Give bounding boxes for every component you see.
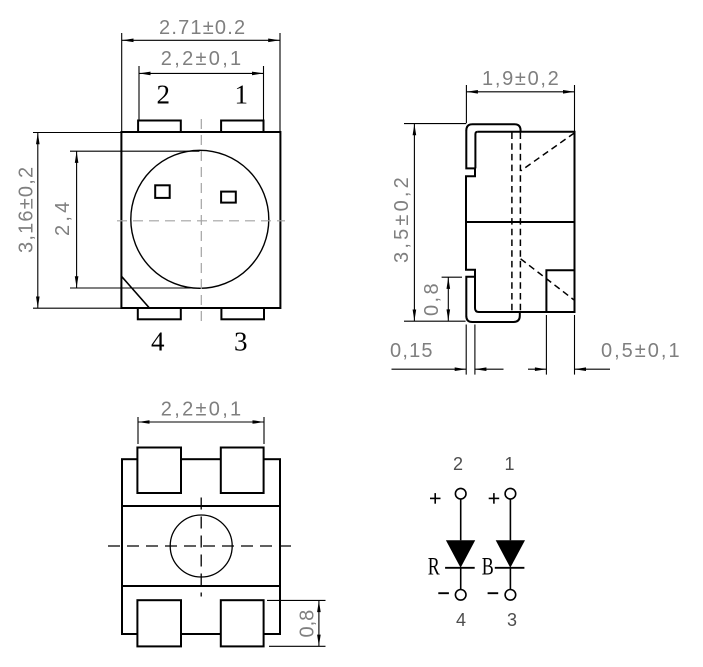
svg-text:0,5±0,1: 0,5±0,1	[601, 340, 682, 362]
svg-text:3,5±0,2: 3,5±0,2	[391, 174, 413, 263]
svg-text:3: 3	[234, 327, 248, 357]
svg-text:2,2±0,1: 2,2±0,1	[161, 48, 244, 70]
svg-text:0,8: 0,8	[421, 281, 443, 316]
svg-text:0,15: 0,15	[390, 340, 434, 362]
svg-text:1,9±0,2: 1,9±0,2	[482, 68, 560, 90]
svg-text:3: 3	[507, 610, 518, 630]
svg-text:2,4: 2,4	[52, 199, 74, 236]
svg-text:R: R	[428, 554, 440, 581]
svg-text:2: 2	[453, 454, 464, 474]
svg-text:1: 1	[505, 454, 516, 474]
svg-text:1: 1	[235, 80, 249, 110]
svg-text:2.71±0.2: 2.71±0.2	[159, 17, 246, 39]
svg-text:3,16±0,2: 3,16±0,2	[16, 166, 38, 253]
svg-text:2,2±0,1: 2,2±0,1	[161, 399, 244, 421]
svg-text:B: B	[482, 554, 494, 581]
svg-text:4: 4	[456, 610, 467, 630]
svg-text:4: 4	[151, 327, 165, 357]
svg-text:2: 2	[157, 80, 171, 110]
svg-text:0,8: 0,8	[296, 610, 318, 638]
